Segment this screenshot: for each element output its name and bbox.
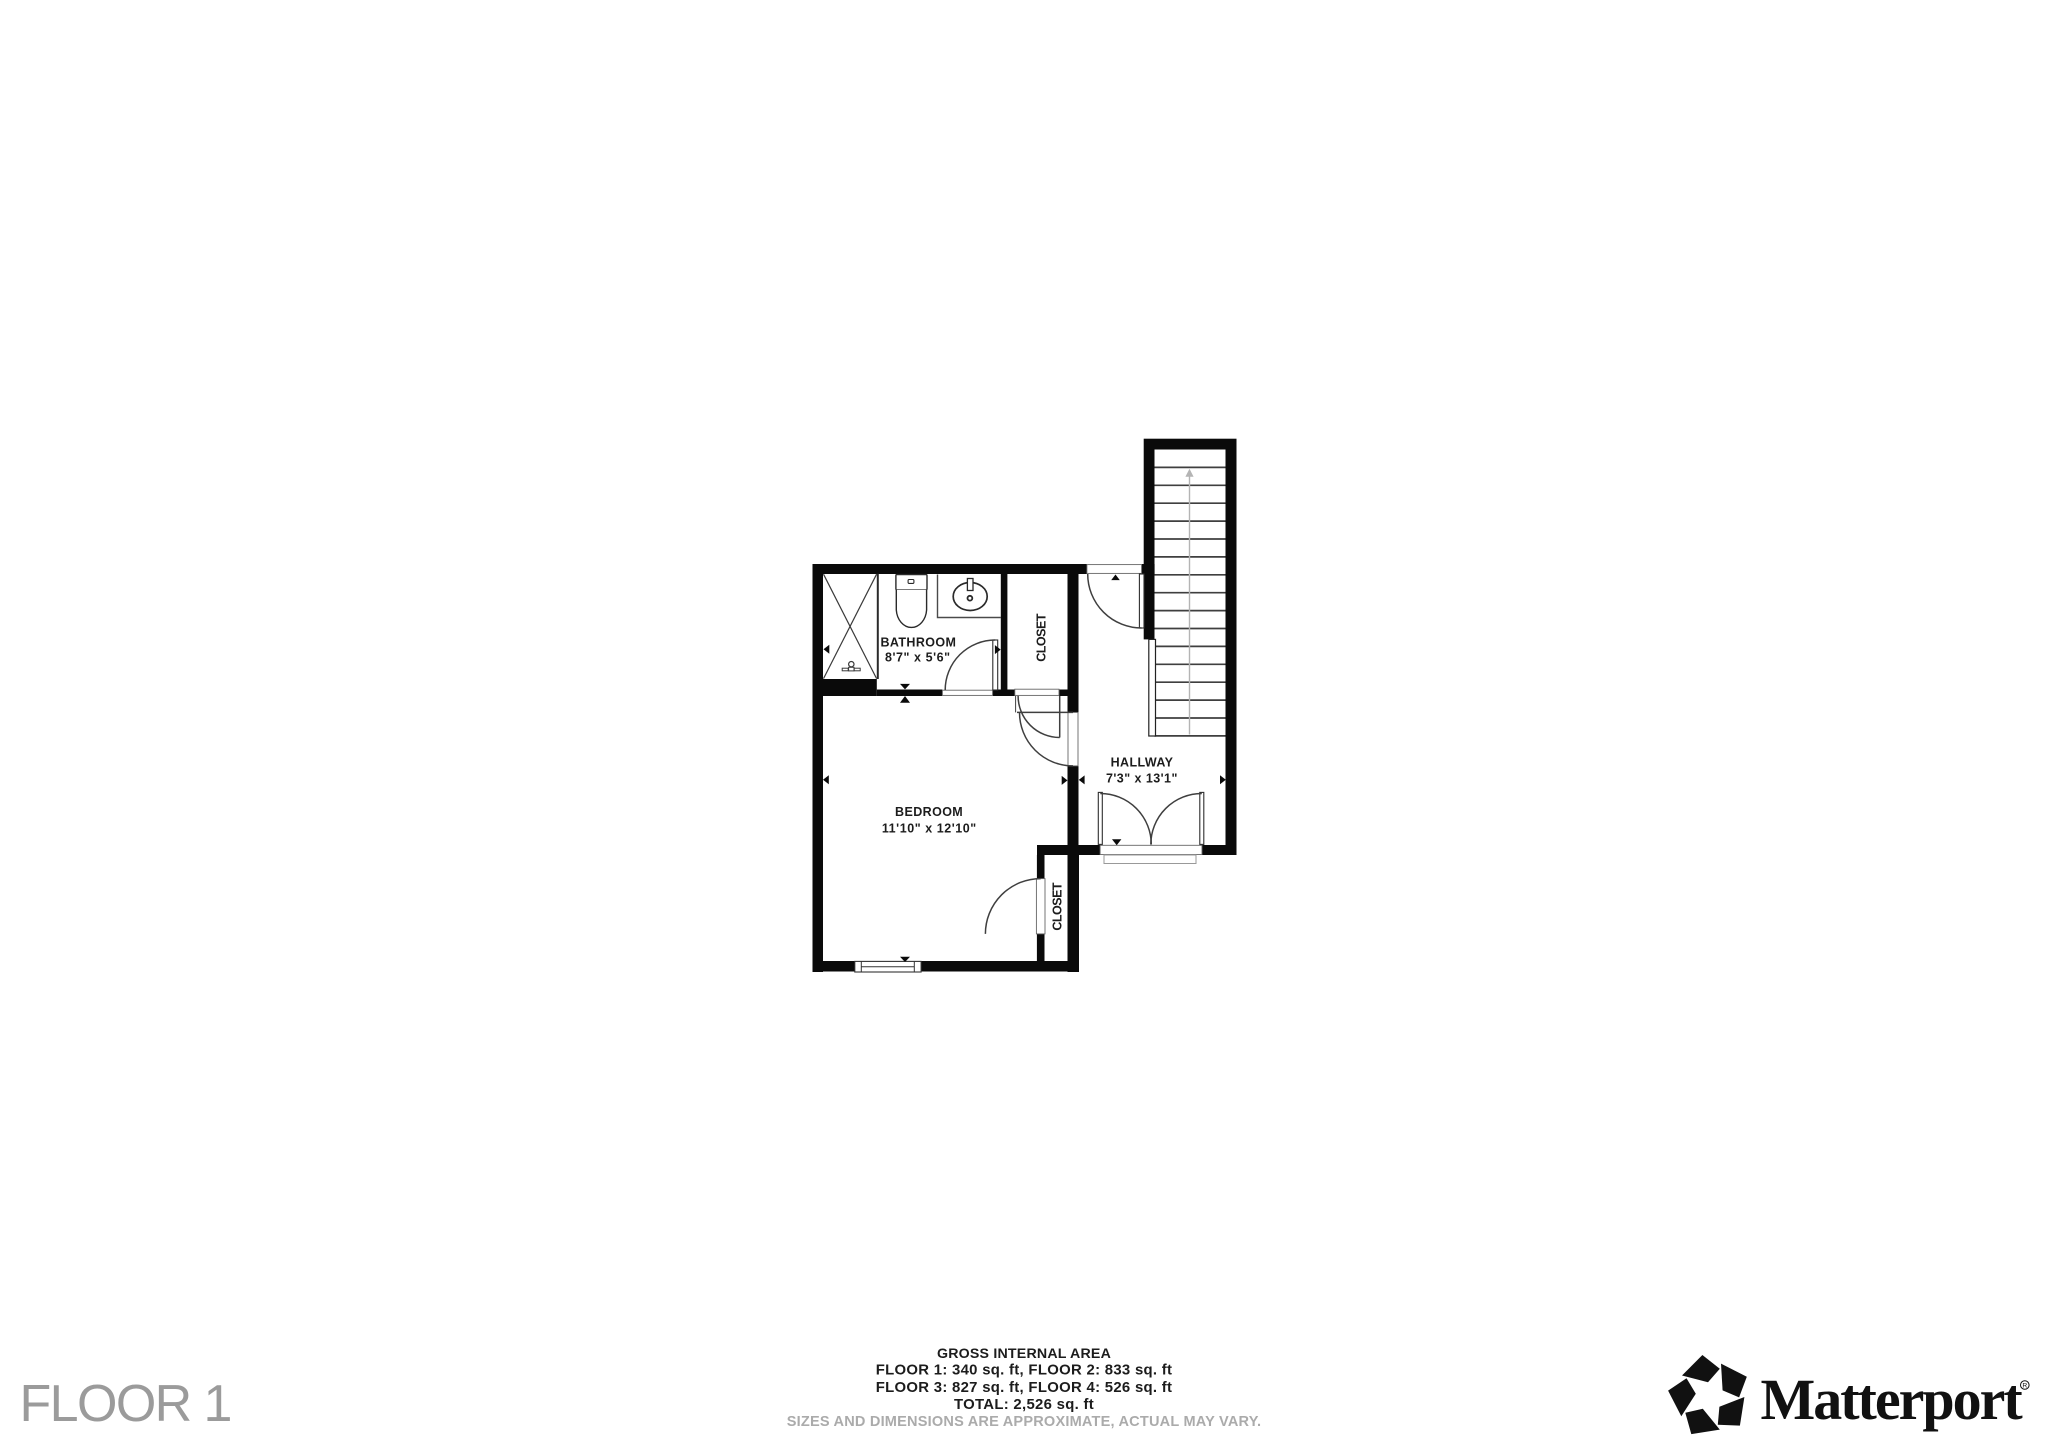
svg-text:TOTAL: 2,526 sq. ft: TOTAL: 2,526 sq. ft	[954, 1397, 1094, 1413]
svg-text:BATHROOM: BATHROOM	[880, 635, 956, 649]
svg-text:FLOOR 3: 827 sq. ft, FLOOR 4:: FLOOR 3: 827 sq. ft, FLOOR 4: 526 sq. ft	[876, 1380, 1173, 1396]
svg-text:CLOSET: CLOSET	[1051, 882, 1065, 931]
svg-text:Matterport: Matterport	[1761, 1367, 2024, 1432]
svg-text:CLOSET: CLOSET	[1035, 613, 1049, 662]
svg-text:R: R	[2022, 1383, 2027, 1390]
svg-text:HALLWAY: HALLWAY	[1111, 756, 1174, 770]
svg-text:GROSS INTERNAL AREA: GROSS INTERNAL AREA	[937, 1346, 1111, 1362]
svg-text:BEDROOM: BEDROOM	[895, 805, 963, 819]
svg-text:11'10" x 12'10": 11'10" x 12'10"	[882, 821, 977, 835]
svg-text:8'7" x 5'6": 8'7" x 5'6"	[885, 651, 951, 665]
svg-text:SIZES AND DIMENSIONS ARE APPRO: SIZES AND DIMENSIONS ARE APPROXIMATE, AC…	[787, 1414, 1261, 1430]
svg-text:FLOOR 1: 340 sq. ft, FLOOR 2:: FLOOR 1: 340 sq. ft, FLOOR 2: 833 sq. ft	[876, 1363, 1173, 1379]
svg-text:7'3" x 13'1": 7'3" x 13'1"	[1106, 772, 1178, 786]
svg-text:FLOOR 1: FLOOR 1	[20, 1375, 231, 1433]
